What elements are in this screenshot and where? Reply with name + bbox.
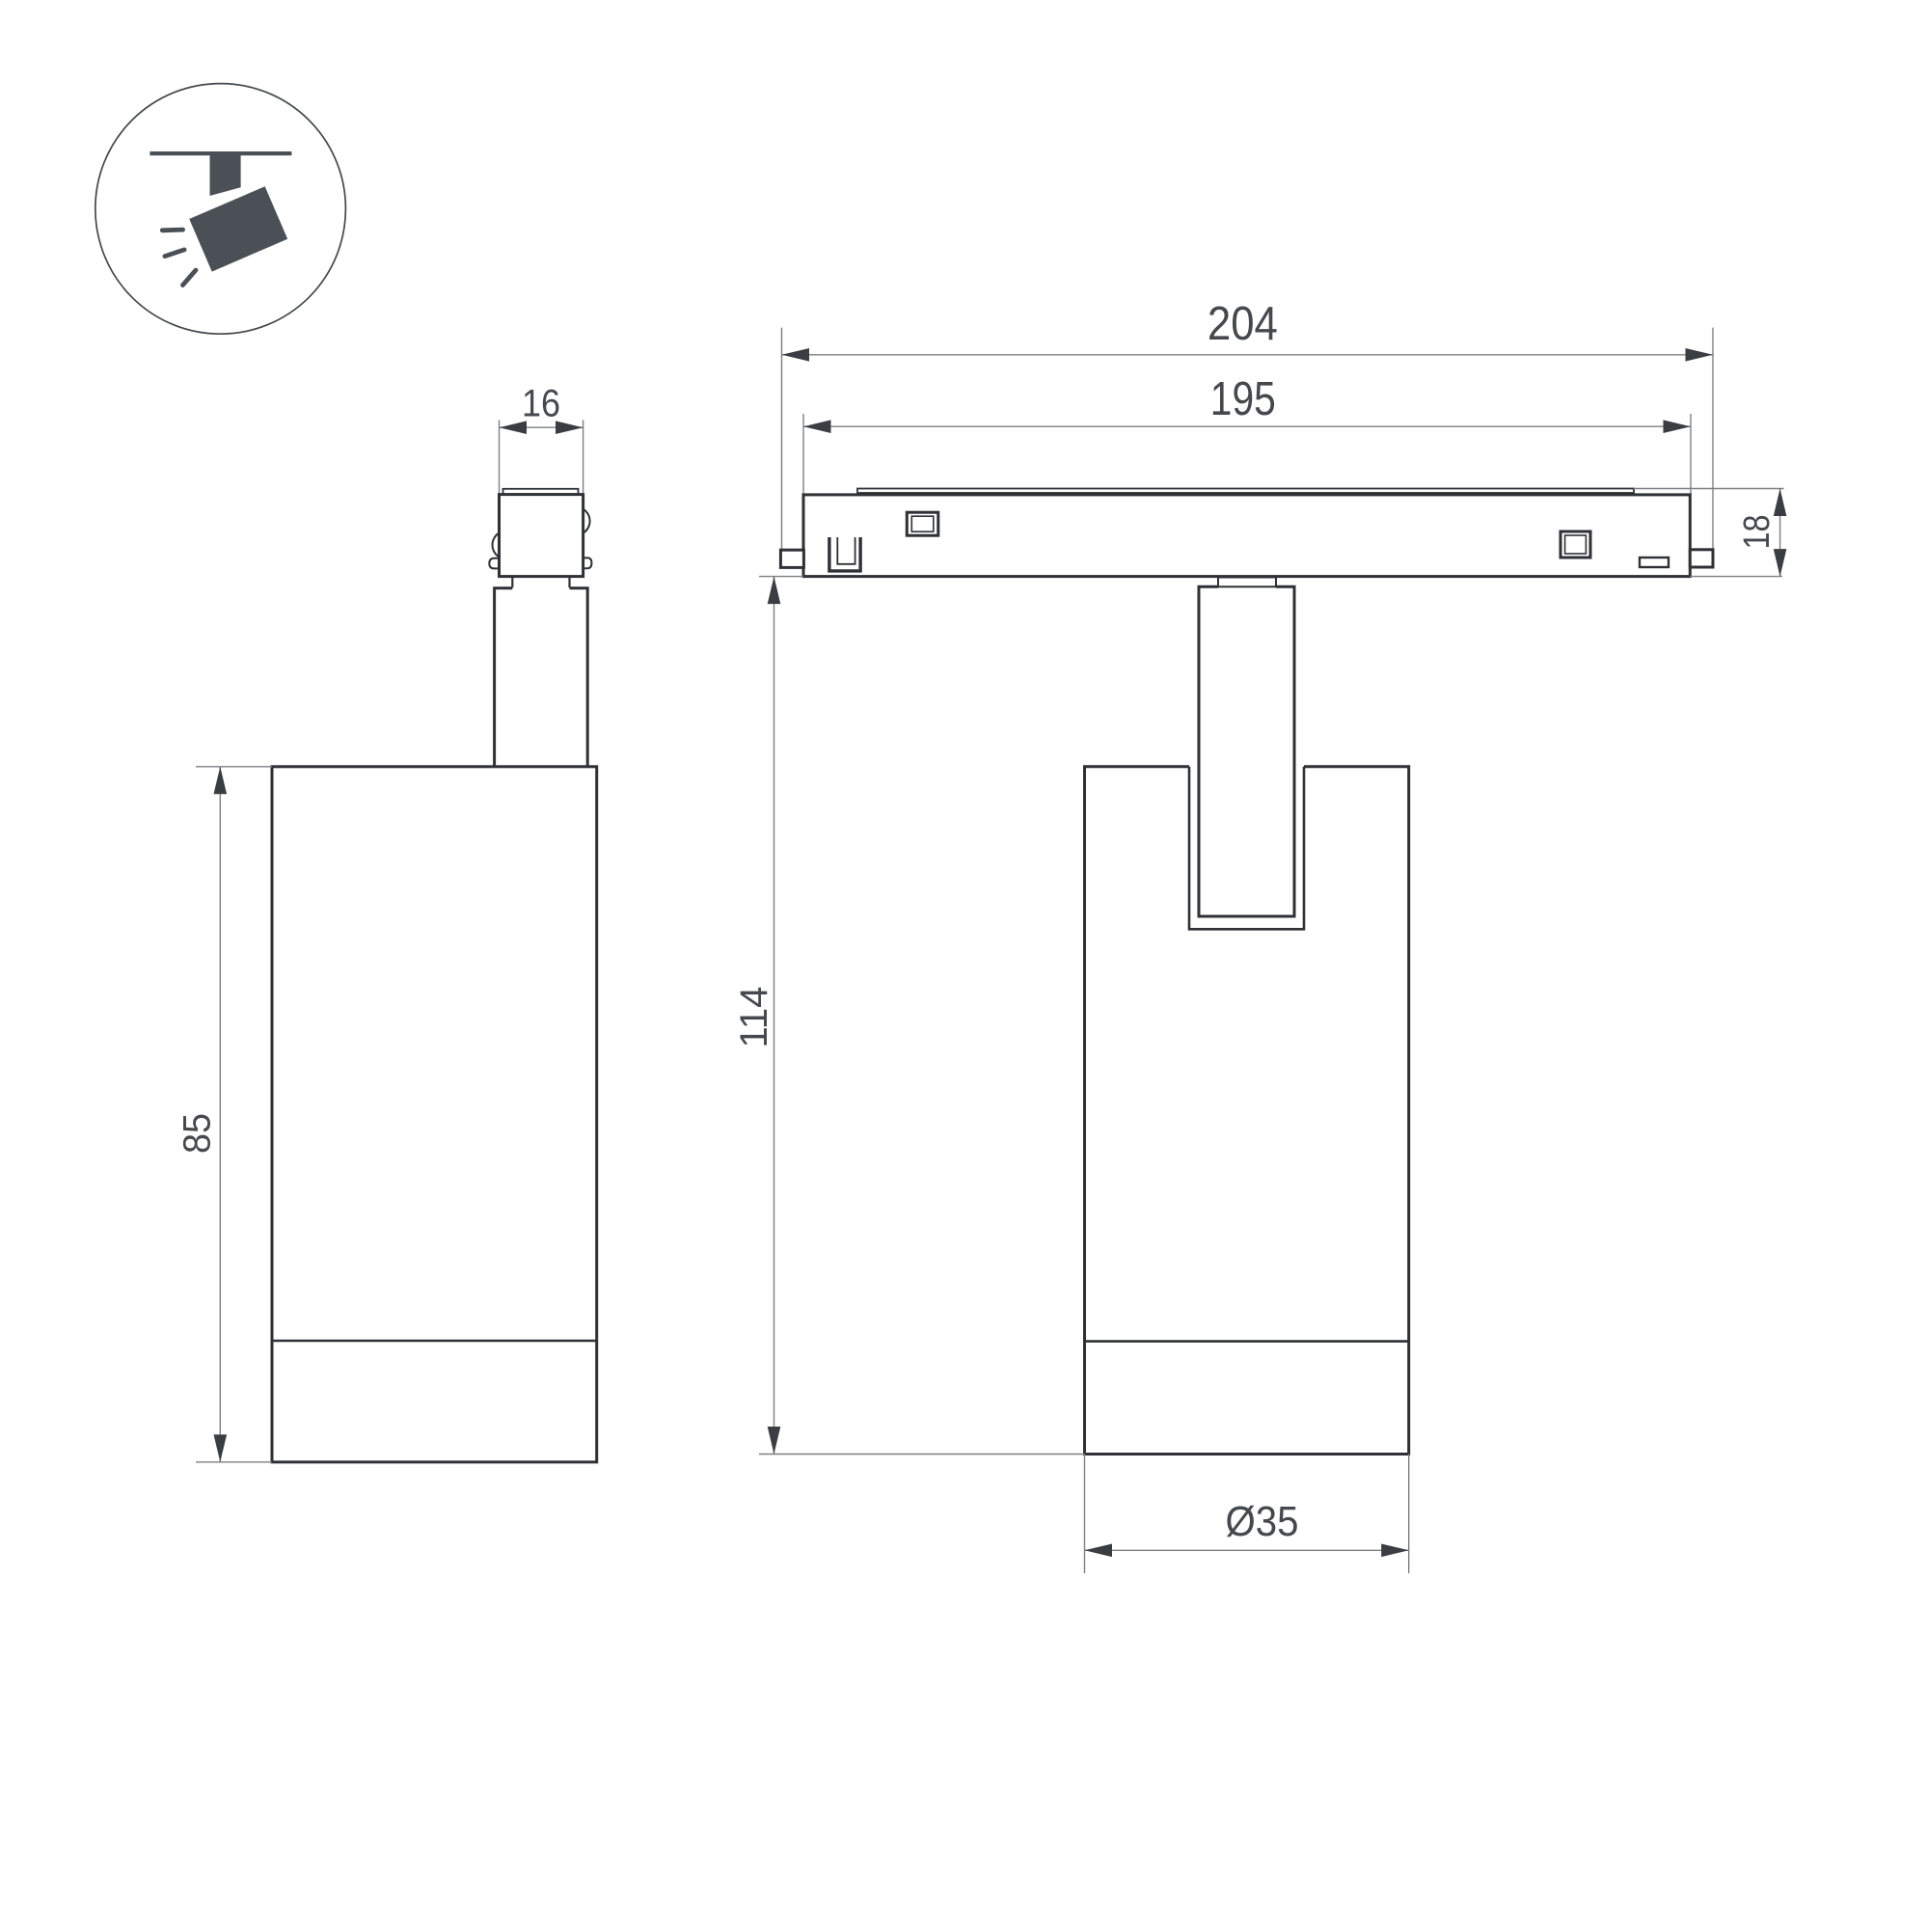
svg-text:114: 114 [733,987,775,1048]
svg-text:85: 85 [176,1113,219,1154]
svg-text:204: 204 [1208,298,1278,350]
svg-text:16: 16 [522,382,560,424]
svg-text:18: 18 [1736,515,1778,550]
svg-text:195: 195 [1210,373,1276,425]
svg-text:Ø35: Ø35 [1226,1498,1299,1545]
